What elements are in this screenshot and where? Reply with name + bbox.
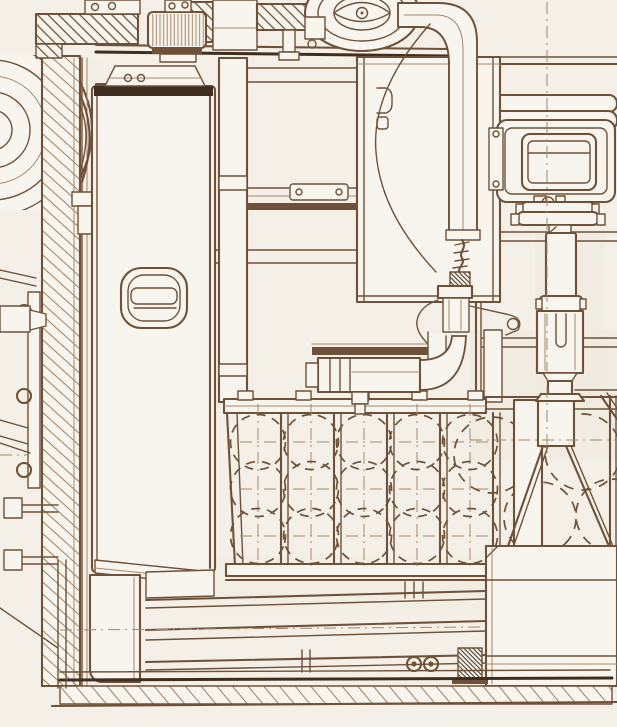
bottom-right-box — [486, 546, 617, 686]
flanged-fitting — [318, 358, 420, 392]
oil-tank — [92, 66, 215, 585]
tank-support-shelf — [146, 570, 214, 598]
tank-lid — [105, 66, 205, 86]
column-base — [538, 401, 574, 446]
shelf-band — [312, 347, 428, 355]
frame-post — [219, 58, 247, 402]
tank-cap-seam — [94, 86, 213, 96]
fan-mount-tab — [305, 17, 325, 39]
tank-handle — [121, 268, 187, 328]
drawing-page — [0, 0, 617, 727]
post-collar — [219, 176, 247, 190]
inspection-plate — [290, 184, 348, 200]
support-plank — [484, 330, 502, 402]
post-collar-lower — [219, 364, 247, 376]
valve-body — [443, 298, 469, 332]
floor-rounded-panel — [90, 575, 140, 682]
valve-cap — [438, 286, 472, 298]
hull-side-wall — [42, 56, 80, 686]
pipe-end-cap — [446, 230, 480, 240]
technical-drawing-canvas — [0, 0, 617, 727]
mount-bar-lower — [517, 212, 599, 225]
